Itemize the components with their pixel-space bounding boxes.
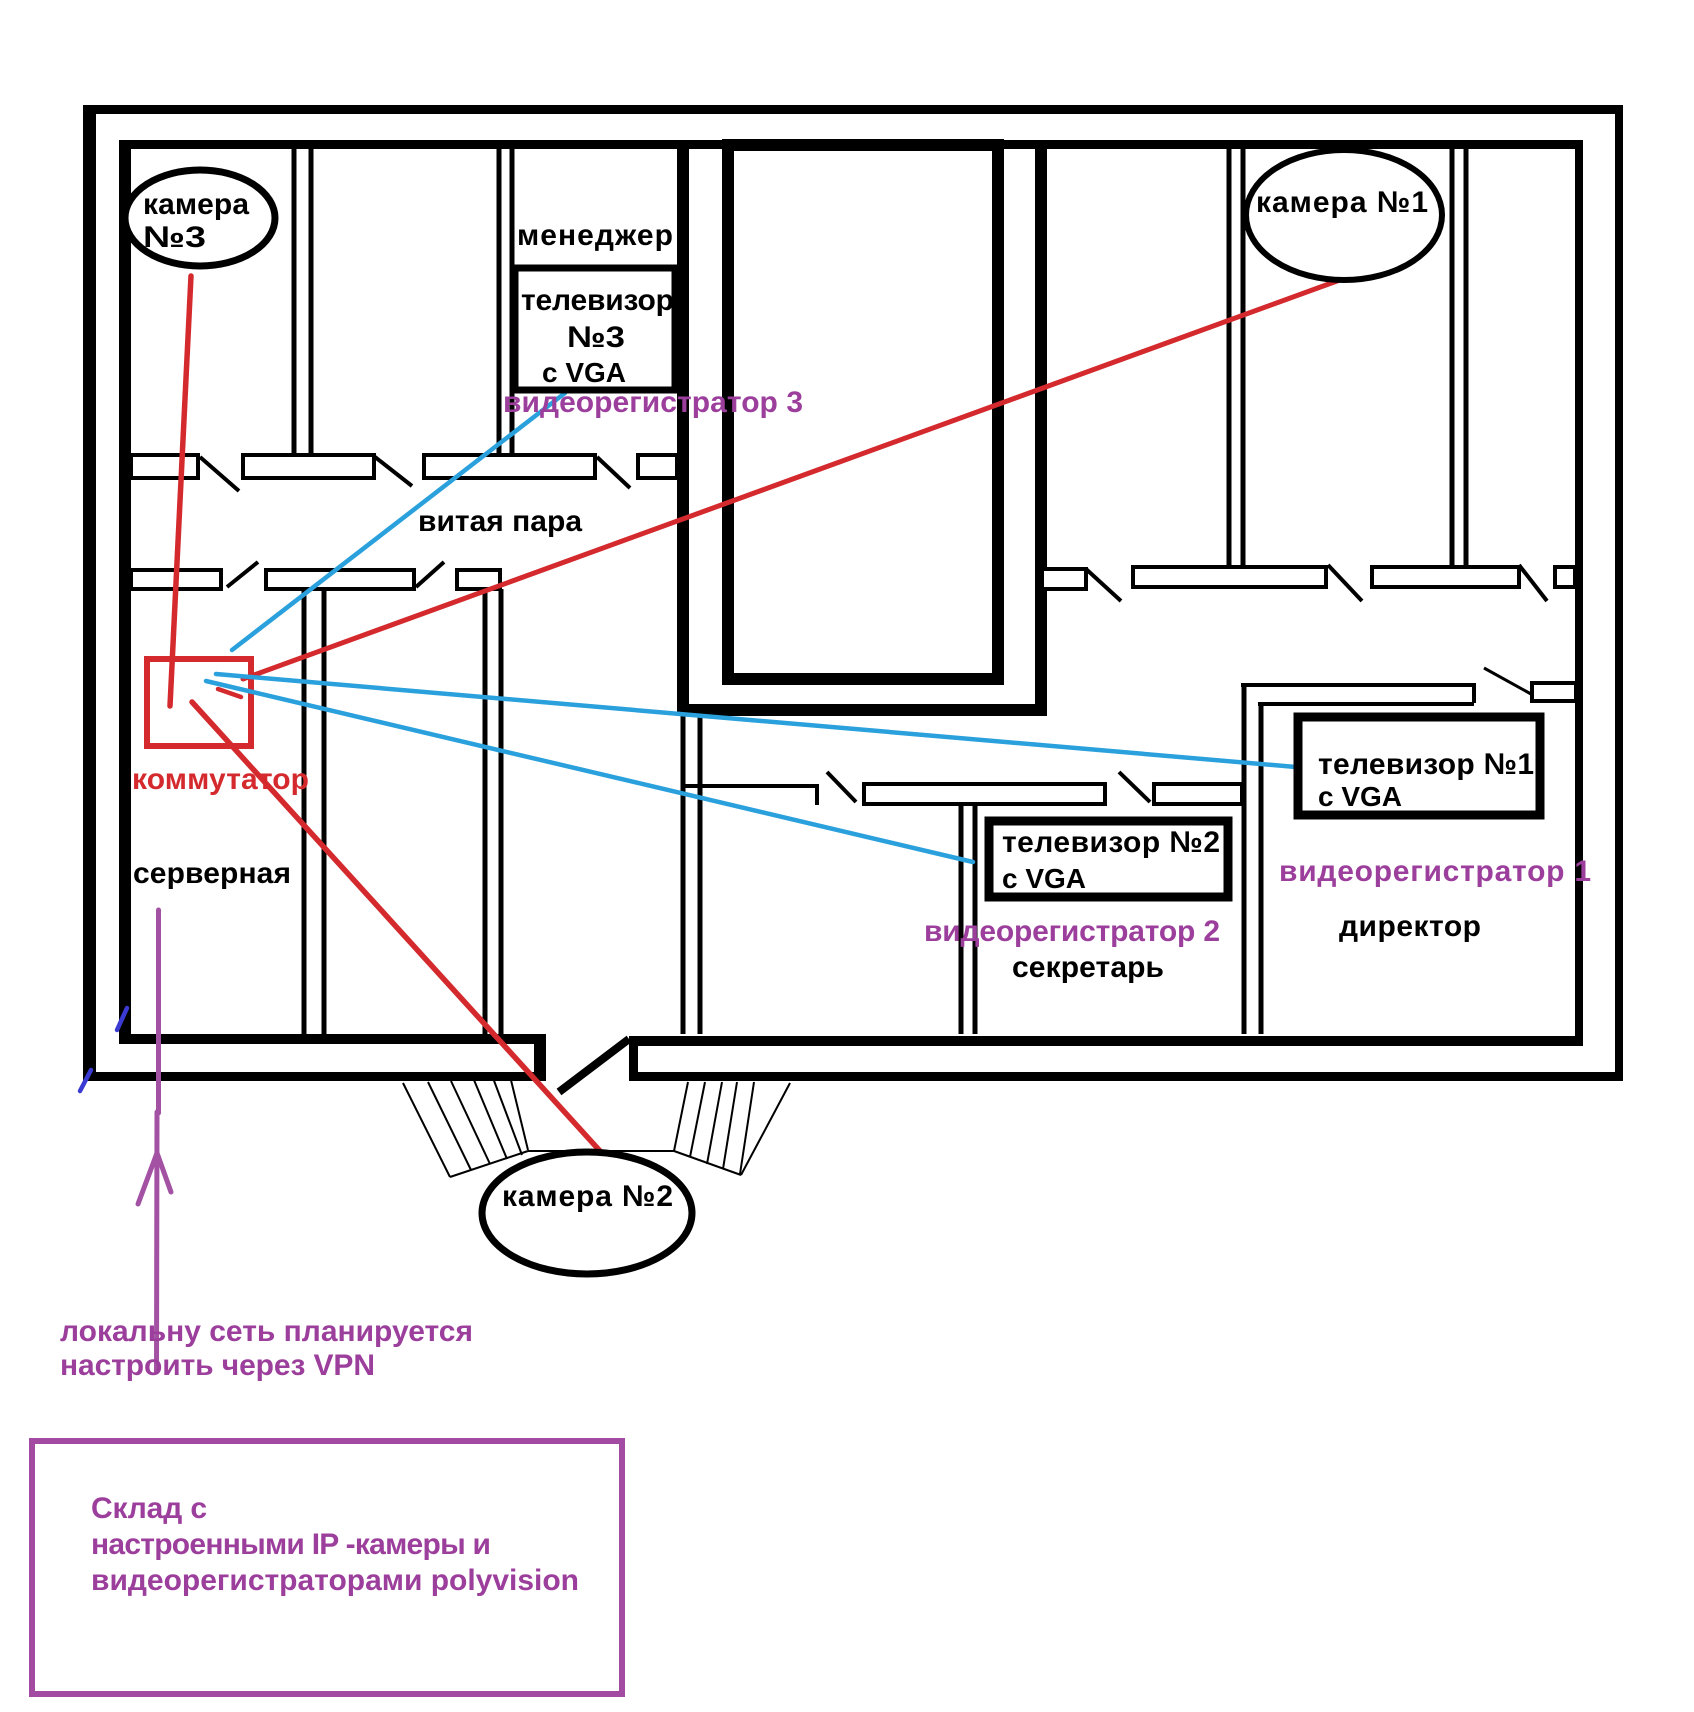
svg-text:с VGA: с VGA bbox=[1002, 863, 1086, 894]
svg-text:настроить через VPN: настроить через VPN bbox=[60, 1349, 375, 1382]
svg-text:телевизор: телевизор bbox=[521, 284, 674, 317]
svg-text:менеджер: менеджер bbox=[517, 219, 673, 252]
svg-text:видеорегистраторами polyvision: видеорегистраторами polyvision bbox=[91, 1564, 579, 1597]
svg-text:телевизор №2: телевизор №2 bbox=[1002, 826, 1220, 859]
svg-text:витая пара: витая пара bbox=[418, 505, 582, 538]
svg-text:секретарь: секретарь bbox=[1012, 951, 1164, 984]
svg-text:коммутатор: коммутатор bbox=[132, 763, 309, 796]
svg-text:камера: камера bbox=[143, 188, 249, 221]
svg-text:камера №1: камера №1 bbox=[1256, 186, 1428, 219]
svg-text:Склад с: Склад с bbox=[91, 1492, 207, 1525]
svg-text:с VGA: с VGA bbox=[1318, 781, 1402, 812]
svg-text:№3: №3 bbox=[567, 321, 625, 354]
svg-text:видеорегистратор 2: видеорегистратор 2 bbox=[924, 915, 1220, 948]
svg-text:телевизор №1: телевизор №1 bbox=[1318, 748, 1534, 781]
svg-text:№3: №3 bbox=[143, 221, 206, 254]
svg-text:локальну сеть планируется: локальну сеть планируется bbox=[60, 1315, 473, 1348]
svg-text:директор: директор bbox=[1339, 910, 1481, 943]
svg-text:с VGA: с VGA bbox=[542, 357, 626, 388]
svg-text:видеорегистратор 1: видеорегистратор 1 bbox=[1279, 855, 1591, 888]
svg-text:видеорегистратор 3: видеорегистратор 3 bbox=[503, 386, 803, 419]
svg-text:серверная: серверная bbox=[133, 857, 291, 890]
svg-text:камера №2: камера №2 bbox=[502, 1180, 673, 1213]
svg-text:настроенными IP -камеры и: настроенными IP -камеры и bbox=[91, 1528, 491, 1561]
